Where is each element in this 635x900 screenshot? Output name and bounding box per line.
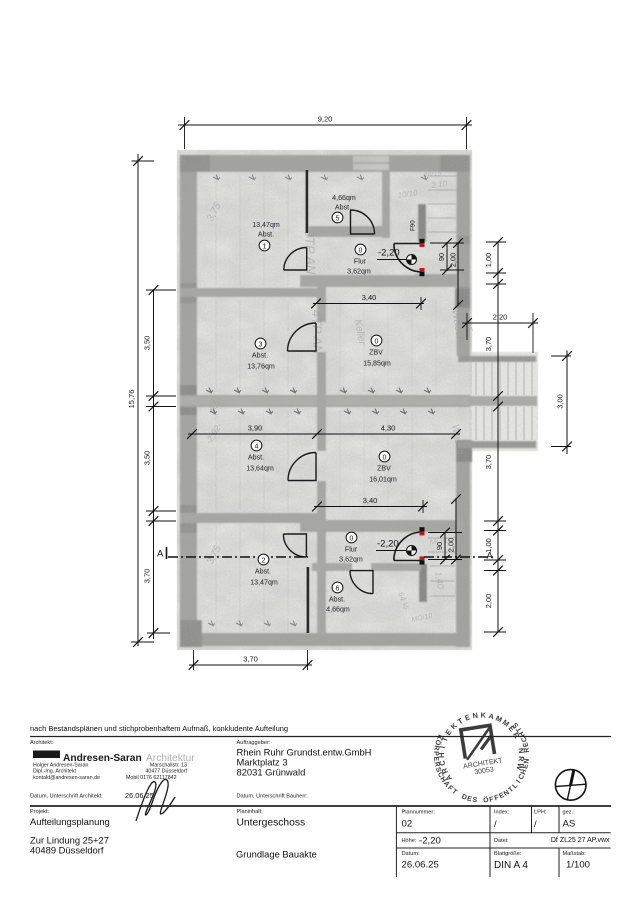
svg-text:Projekt:: Projekt: [30, 809, 49, 815]
svg-text:Plannummer:: Plannummer: [402, 810, 436, 816]
svg-text:3,70: 3,70 [243, 655, 258, 664]
svg-text:Blattgröße:: Blattgröße: [494, 851, 522, 857]
svg-text:13,47qm: 13,47qm [252, 221, 280, 229]
svg-text:kontakt@andresen-saran.de: kontakt@andresen-saran.de [33, 775, 100, 781]
svg-text:Architekt:: Architekt: [30, 740, 54, 746]
svg-text:Datum, Unterschrift Bauherr:: Datum, Unterschrift Bauherr: [237, 794, 309, 800]
svg-text:0: 0 [383, 454, 387, 461]
svg-text:P: P [432, 751, 439, 756]
svg-text:40489 Düsseldorf: 40489 Düsseldorf [30, 845, 104, 856]
svg-text:3: 3 [259, 341, 263, 348]
svg-text:ZBV: ZBV [377, 465, 391, 473]
svg-text:82031 Grünwald: 82031 Grünwald [237, 767, 306, 778]
svg-text:3,62qm: 3,62qm [339, 556, 363, 564]
svg-text:15,85qm: 15,85qm [363, 360, 391, 368]
svg-text:6: 6 [336, 585, 340, 592]
svg-text:F90: F90 [410, 220, 417, 231]
svg-text:3,70: 3,70 [484, 455, 493, 470]
svg-text:3,00: 3,00 [556, 394, 565, 409]
svg-text:-2,20: -2,20 [378, 248, 400, 259]
svg-text:3,50: 3,50 [143, 336, 152, 351]
svg-text:4: 4 [255, 443, 259, 450]
svg-text:2,00: 2,00 [484, 594, 493, 609]
svg-text:Grundlage Bauakte: Grundlage Bauakte [236, 849, 317, 860]
svg-text:1/100: 1/100 [566, 860, 590, 871]
svg-text:13,76qm: 13,76qm [247, 363, 275, 371]
svg-text:Höhe:: Höhe: [402, 838, 417, 844]
svg-text:3,50: 3,50 [143, 451, 152, 466]
svg-text:3,62qm: 3,62qm [347, 268, 371, 276]
svg-text:0: 0 [359, 247, 363, 254]
svg-text:26.06.25: 26.06.25 [125, 791, 154, 800]
svg-text:Flur: Flur [354, 258, 367, 266]
svg-text:/: / [494, 819, 497, 830]
svg-text:40477 Düsseldorf: 40477 Düsseldorf [145, 769, 187, 775]
svg-text:3,70: 3,70 [143, 569, 152, 584]
svg-text:2,20: 2,20 [493, 313, 508, 322]
svg-text:DIN A 4: DIN A 4 [494, 860, 528, 871]
svg-text:Dipl.-Ing. Architekt: Dipl.-Ing. Architekt [33, 769, 77, 775]
svg-text:Abst.: Abst. [335, 204, 351, 212]
svg-text:gez.:: gez.: [563, 810, 576, 816]
svg-text:Abst.: Abst. [329, 596, 345, 604]
svg-text:5: 5 [336, 215, 340, 222]
svg-text:0: 0 [375, 338, 379, 345]
svg-text:-2,20: -2,20 [377, 539, 399, 550]
svg-text:02: 02 [402, 819, 413, 830]
svg-text:A: A [157, 549, 164, 560]
svg-text:15,76: 15,76 [127, 390, 136, 409]
svg-text:Flur: Flur [345, 546, 358, 554]
svg-text:/: / [534, 819, 537, 830]
svg-text:Aufteilungsplanung: Aufteilungsplanung [30, 816, 110, 827]
svg-text:90: 90 [437, 253, 446, 261]
svg-text:1: 1 [263, 243, 267, 250]
svg-text:4,66qm: 4,66qm [332, 194, 356, 202]
svg-text:Abst.: Abst. [258, 231, 274, 239]
svg-text:4,30: 4,30 [381, 424, 396, 433]
svg-text:-2,20: -2,20 [419, 836, 441, 847]
svg-text:26.06.25: 26.06.25 [402, 860, 439, 871]
svg-text:nach Bestandsplänen und stichp: nach Bestandsplänen und stichprobenhafte… [30, 724, 288, 733]
svg-text:Auftraggeber:: Auftraggeber: [237, 740, 271, 746]
svg-text:Mobil 0176 62117842: Mobil 0176 62117842 [126, 775, 177, 781]
svg-text:2: 2 [262, 557, 266, 564]
svg-text:Abst.: Abst. [255, 568, 271, 576]
svg-text:Abst.: Abst. [252, 352, 268, 360]
svg-text:LPH:: LPH: [534, 810, 547, 816]
svg-text:Untergeschoss: Untergeschoss [237, 818, 306, 829]
svg-text:9,20: 9,20 [318, 115, 333, 124]
svg-text:Datum:: Datum: [402, 851, 420, 857]
svg-text:ZBV: ZBV [369, 349, 383, 357]
svg-text:3,40: 3,40 [363, 496, 378, 505]
svg-text:4,66qm: 4,66qm [326, 606, 350, 614]
svg-text:2,00: 2,00 [447, 538, 456, 553]
svg-text:Df ZL25 27 AP.vwx: Df ZL25 27 AP.vwx [551, 837, 610, 844]
svg-text:16,01qm: 16,01qm [369, 476, 397, 484]
svg-text:13,47qm: 13,47qm [250, 579, 278, 587]
svg-text:3,70: 3,70 [484, 337, 493, 352]
svg-text:3,40: 3,40 [362, 293, 377, 302]
svg-text:Abst.: Abst. [248, 454, 264, 462]
svg-text:Maßstab:: Maßstab: [563, 851, 587, 857]
svg-text:13,64qm: 13,64qm [246, 465, 274, 473]
svg-text:Datum, Unterschrift Architekt:: Datum, Unterschrift Architekt: [30, 794, 103, 800]
svg-text:AS: AS [563, 819, 576, 830]
svg-text:N: N [523, 758, 531, 764]
svg-text:1,00: 1,00 [484, 253, 493, 268]
svg-text:2,00: 2,00 [449, 253, 458, 268]
svg-text:Planinhalt:: Planinhalt: [237, 809, 264, 815]
svg-text:90: 90 [435, 542, 444, 550]
svg-text:3,90: 3,90 [248, 424, 263, 433]
svg-text:0: 0 [350, 535, 354, 542]
svg-text:1,00: 1,00 [484, 538, 493, 553]
svg-text:Datei:: Datei: [494, 838, 509, 844]
svg-text:Index:: Index: [494, 810, 510, 816]
